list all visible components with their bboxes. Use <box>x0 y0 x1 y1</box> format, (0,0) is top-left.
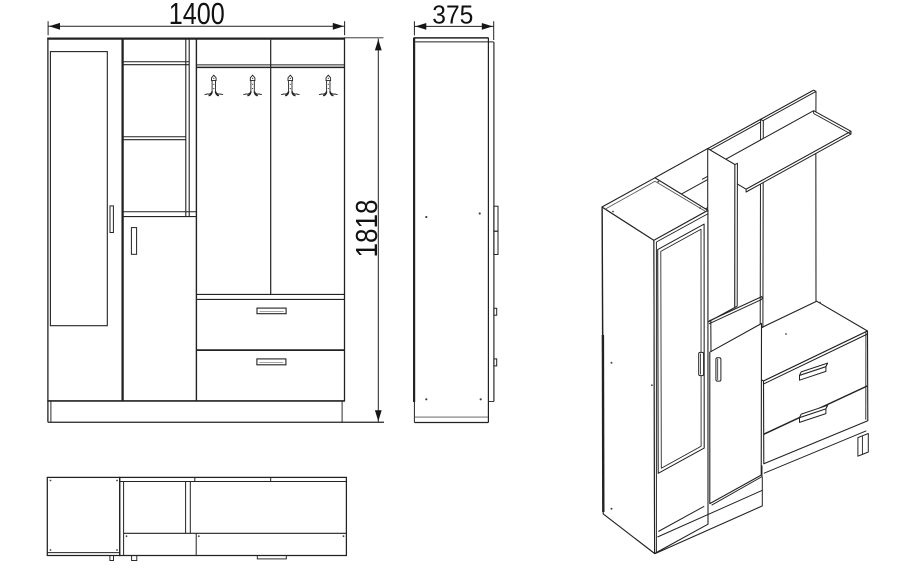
svg-text:1400: 1400 <box>169 0 225 31</box>
svg-text:375: 375 <box>432 0 473 30</box>
svg-text:1818: 1818 <box>349 200 384 258</box>
